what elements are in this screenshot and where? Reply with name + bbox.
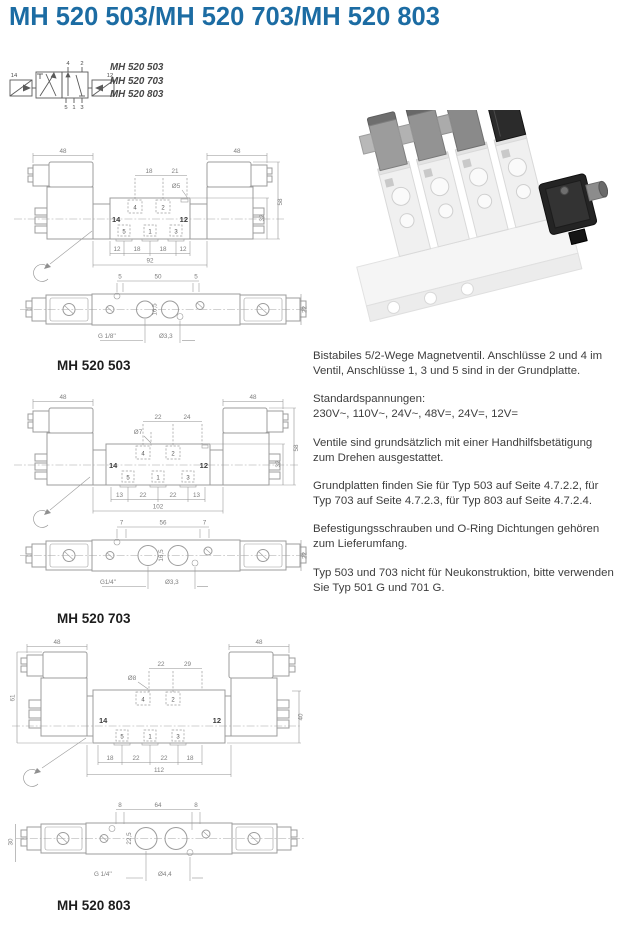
description-text: Bistabiles 5/2-Wege Magnetventil. Anschl… [313, 349, 616, 609]
dim-label: 102 [153, 504, 164, 511]
dim-label: 48 [255, 639, 263, 646]
dim-label: 5 [194, 274, 198, 281]
svg-text:1: 1 [148, 735, 152, 741]
dim-label: 50 [154, 274, 162, 281]
description-paragraph: Bistabiles 5/2-Wege Magnetventil. Anschl… [313, 349, 616, 379]
dim-label: Ø3,3 [159, 333, 173, 340]
dim-label: G 1/8'' [98, 333, 116, 340]
dim-label: 16,5 [152, 303, 159, 316]
symbol-port-3: 3 [80, 105, 83, 110]
dim-label: 22 [157, 661, 165, 668]
dimensions: 48 48 22 24 Ø7 58 32 13 22 22 [33, 394, 300, 514]
dim-label: 22 [169, 492, 177, 499]
description-paragraph: Grundplatten finden Sie für Typ 503 auf … [313, 479, 616, 509]
dimensions: 48 48 18 21 Ø5 58 32 12 18 18 12 [33, 148, 284, 268]
dim-label: 22 [302, 552, 309, 560]
svg-text:3: 3 [174, 230, 178, 236]
svg-text:4: 4 [141, 452, 145, 458]
dim-label: 48 [59, 394, 67, 401]
dim-label: Ø4,4 [158, 871, 172, 878]
bottom-view: 5 50 5 16,5 22 G 1/8'' Ø3,3 [20, 274, 309, 344]
svg-text:12: 12 [180, 215, 188, 224]
dim-label: 18 [159, 246, 167, 253]
svg-text:12: 12 [200, 461, 208, 470]
dim-label: 21 [171, 168, 179, 175]
dim-label: Ø3,3 [165, 579, 179, 586]
technical-drawing-mh-520-503: 48 48 18 21 Ø5 58 32 12 18 18 12 [10, 142, 310, 357]
dim-label: Ø8 [128, 675, 137, 682]
svg-text:1: 1 [156, 476, 160, 482]
svg-text:5: 5 [126, 476, 130, 482]
dim-label: 29 [184, 661, 192, 668]
svg-text:14: 14 [99, 716, 108, 725]
symbol-port-1: 1 [72, 105, 75, 110]
svg-text:4: 4 [133, 206, 137, 212]
drawing-caption: MH 520 803 [57, 898, 131, 913]
dim-label: 48 [59, 148, 67, 155]
catalog-page: MH 520 503/MH 520 703/MH 520 803 14 12 4… [0, 0, 618, 929]
dim-label: 7 [203, 520, 207, 527]
dim-label: 112 [154, 767, 165, 774]
svg-text:2: 2 [161, 206, 165, 212]
symbol-port-5: 5 [64, 105, 67, 110]
drawing-caption: MH 520 703 [57, 611, 131, 626]
symbol-port-14: 14 [11, 73, 18, 79]
svg-text:1: 1 [148, 230, 152, 236]
dim-label: 18 [186, 755, 194, 762]
description-paragraph: Befestigungsschrauben und O-Ring Dichtun… [313, 522, 616, 552]
variant-label: MH 520 703 [110, 75, 163, 89]
dim-label: 40 [298, 713, 305, 721]
dim-label: 18 [106, 755, 114, 762]
svg-text:3: 3 [186, 476, 190, 482]
port-labels: 4 2 14 12 5 1 3 [112, 206, 188, 236]
dim-label: G1/4'' [100, 579, 116, 586]
dim-label: 8 [118, 802, 122, 809]
dim-label: 8 [194, 802, 198, 809]
dim-label: 61 [10, 694, 17, 702]
dim-label: 22 [154, 414, 162, 421]
valve-circuit-symbol-icon: 14 12 4 2 5 1 3 [6, 58, 121, 110]
description-paragraph: Standardspannungen: 230V~, 110V~, 24V~, … [313, 392, 616, 422]
dim-label: Ø5 [172, 183, 181, 190]
dim-label: 12 [113, 246, 121, 253]
dim-label: 22,5 [126, 832, 133, 845]
bottom-view: 7 56 7 16,5 22 G1/4'' Ø3,3 [20, 520, 309, 590]
symbol-port-4: 4 [66, 61, 70, 67]
dim-label: 12 [179, 246, 187, 253]
dim-label: 48 [53, 639, 61, 646]
dim-label: Ø7 [134, 429, 143, 436]
port-labels: 4 2 14 12 5 1 3 [109, 452, 208, 482]
svg-text:14: 14 [112, 215, 121, 224]
drawing-caption: MH 520 503 [57, 358, 131, 373]
dim-label: 13 [193, 492, 201, 499]
svg-text:5: 5 [120, 735, 124, 741]
variant-label: MH 520 803 [110, 88, 163, 102]
dim-label: 18 [145, 168, 153, 175]
dim-label: G 1/4'' [94, 871, 112, 878]
technical-drawing-mh-520-703: 48 48 22 24 Ø7 58 32 13 22 22 [10, 388, 310, 608]
dim-label: 22 [160, 755, 168, 762]
description-paragraph: Typ 503 und 703 nicht für Neukonstruktio… [313, 566, 616, 596]
valve-manifold-product-photo [336, 110, 608, 340]
symbol-variant-list: MH 520 503 MH 520 703 MH 520 803 [110, 61, 163, 102]
dim-label: 7 [120, 520, 124, 527]
dim-label: 22 [302, 306, 309, 314]
svg-text:3: 3 [176, 735, 180, 741]
dim-label: 22 [132, 755, 140, 762]
dim-label: 32 [275, 460, 282, 468]
dim-label: 58 [293, 444, 300, 452]
svg-text:2: 2 [171, 698, 175, 704]
dimensions: 48 48 61 22 29 Ø8 40 18 22 22 18 [10, 639, 305, 777]
svg-text:4: 4 [141, 698, 145, 704]
variant-label: MH 520 503 [110, 61, 163, 75]
dim-label: 58 [277, 198, 284, 206]
dim-label: 22 [139, 492, 147, 499]
dim-label: 56 [159, 520, 167, 527]
dim-label: 18 [133, 246, 141, 253]
technical-drawing-mh-520-803: 48 48 61 22 29 Ø8 40 18 22 22 18 [8, 638, 313, 896]
svg-text:2: 2 [171, 452, 175, 458]
bottom-view: 8 64 8 30 22,5 G 1/4'' Ø4,4 [8, 802, 304, 881]
dim-label: 13 [116, 492, 124, 499]
svg-text:5: 5 [122, 230, 126, 236]
dim-label: 16,5 [158, 549, 165, 562]
dim-label: 48 [233, 148, 241, 155]
dim-label: 48 [249, 394, 257, 401]
svg-text:14: 14 [109, 461, 118, 470]
dim-label: 24 [183, 414, 191, 421]
description-paragraph: Ventile sind grundsätzlich mit einer Han… [313, 436, 616, 466]
dim-label: 32 [259, 214, 266, 222]
symbol-port-2: 2 [80, 61, 83, 67]
dim-label: 5 [118, 274, 122, 281]
port-labels: 4 2 14 12 5 1 3 [99, 698, 221, 741]
svg-text:12: 12 [213, 716, 221, 725]
dim-label: 92 [146, 258, 154, 265]
dim-label: 64 [154, 802, 162, 809]
page-title: MH 520 503/MH 520 703/MH 520 803 [9, 3, 440, 32]
dim-label: 30 [8, 838, 15, 846]
